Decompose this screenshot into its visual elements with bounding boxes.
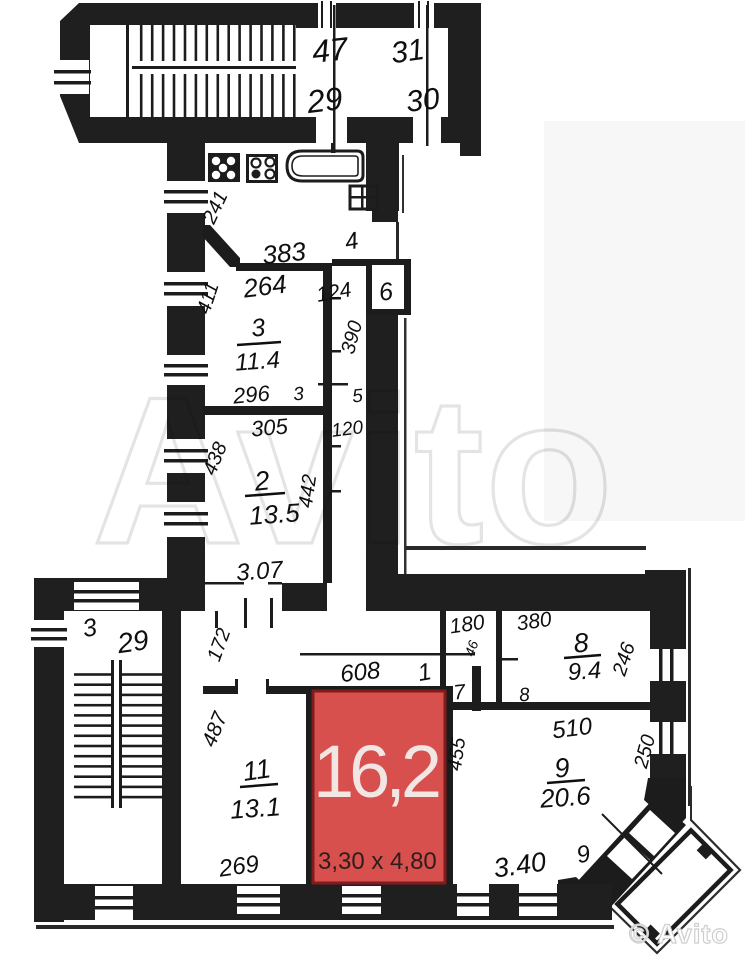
svg-text:© Avito: © Avito — [629, 919, 729, 949]
svg-text:47: 47 — [310, 30, 350, 70]
svg-text:264: 264 — [241, 269, 289, 304]
svg-text:Avito: Avito — [92, 353, 614, 588]
svg-text:11: 11 — [241, 753, 273, 787]
svg-text:29: 29 — [114, 624, 150, 659]
svg-text:269: 269 — [216, 850, 260, 882]
svg-text:608: 608 — [339, 657, 382, 688]
svg-text:383: 383 — [261, 236, 308, 270]
svg-text:30: 30 — [404, 82, 441, 119]
svg-text:29: 29 — [304, 80, 345, 120]
svg-text:9.4: 9.4 — [567, 657, 602, 686]
svg-text:3,30 x 4,80: 3,30 x 4,80 — [318, 848, 437, 875]
svg-text:20.6: 20.6 — [538, 780, 592, 814]
svg-text:31: 31 — [389, 33, 427, 70]
svg-text:180: 180 — [448, 611, 486, 639]
svg-text:16,2: 16,2 — [313, 730, 439, 813]
svg-text:380: 380 — [515, 608, 553, 636]
svg-text:8: 8 — [572, 627, 590, 658]
svg-text:13.1: 13.1 — [229, 791, 282, 824]
svg-text:510: 510 — [551, 713, 595, 745]
svg-text:9: 9 — [553, 752, 571, 783]
